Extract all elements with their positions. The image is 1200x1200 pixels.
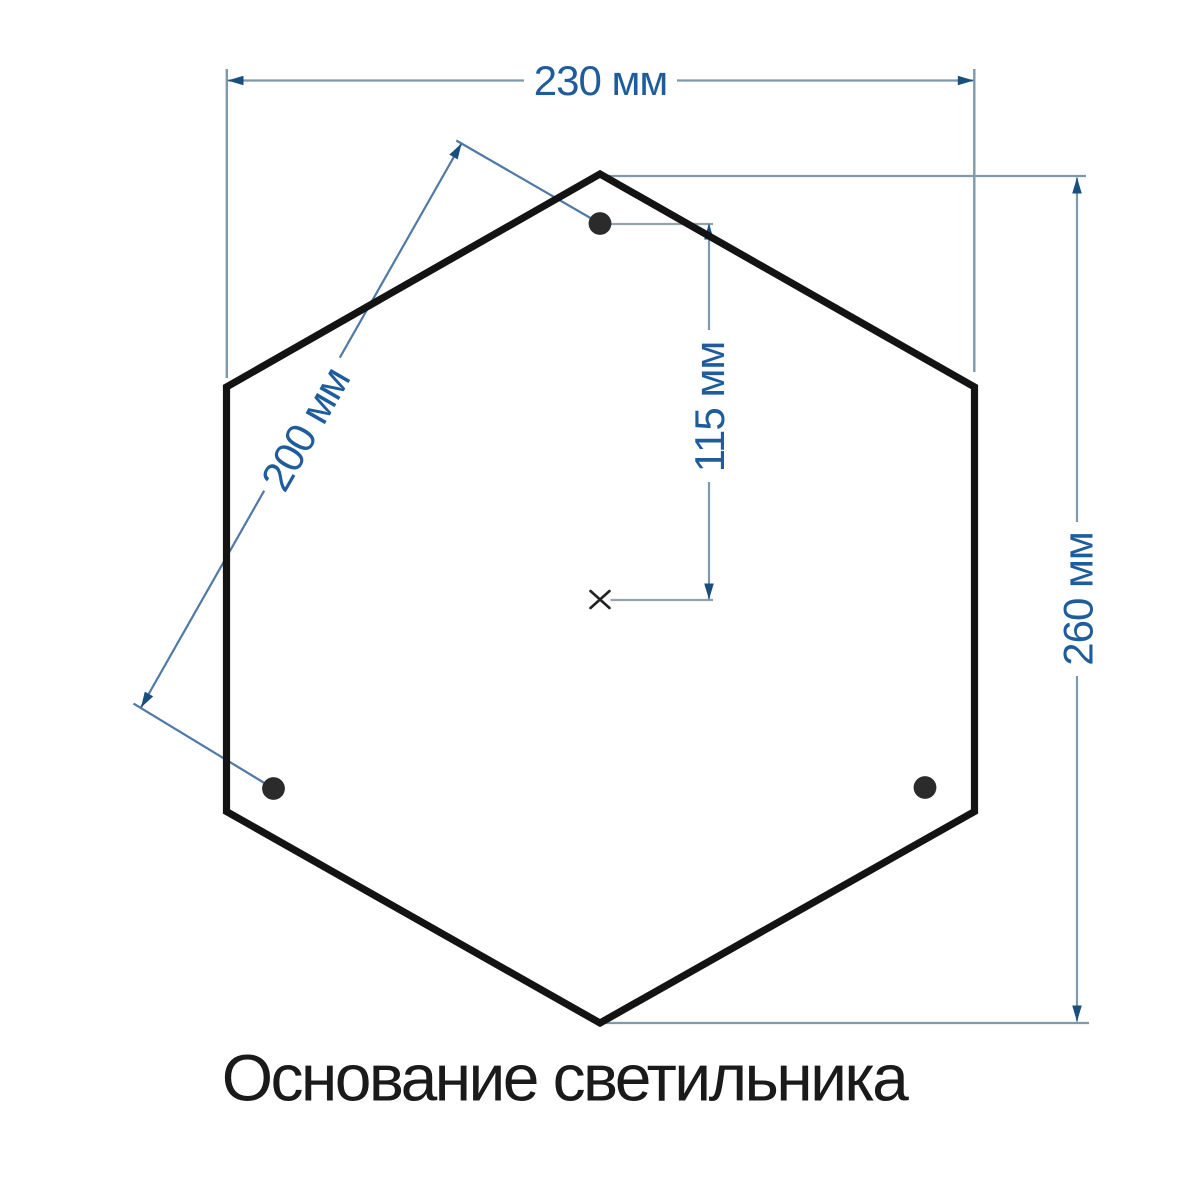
svg-text:115 мм: 115 мм — [686, 342, 733, 472]
svg-text:260 мм: 260 мм — [1055, 532, 1102, 666]
svg-text:230 мм: 230 мм — [534, 57, 668, 104]
svg-text:Основание светильника: Основание светильника — [222, 1041, 909, 1115]
